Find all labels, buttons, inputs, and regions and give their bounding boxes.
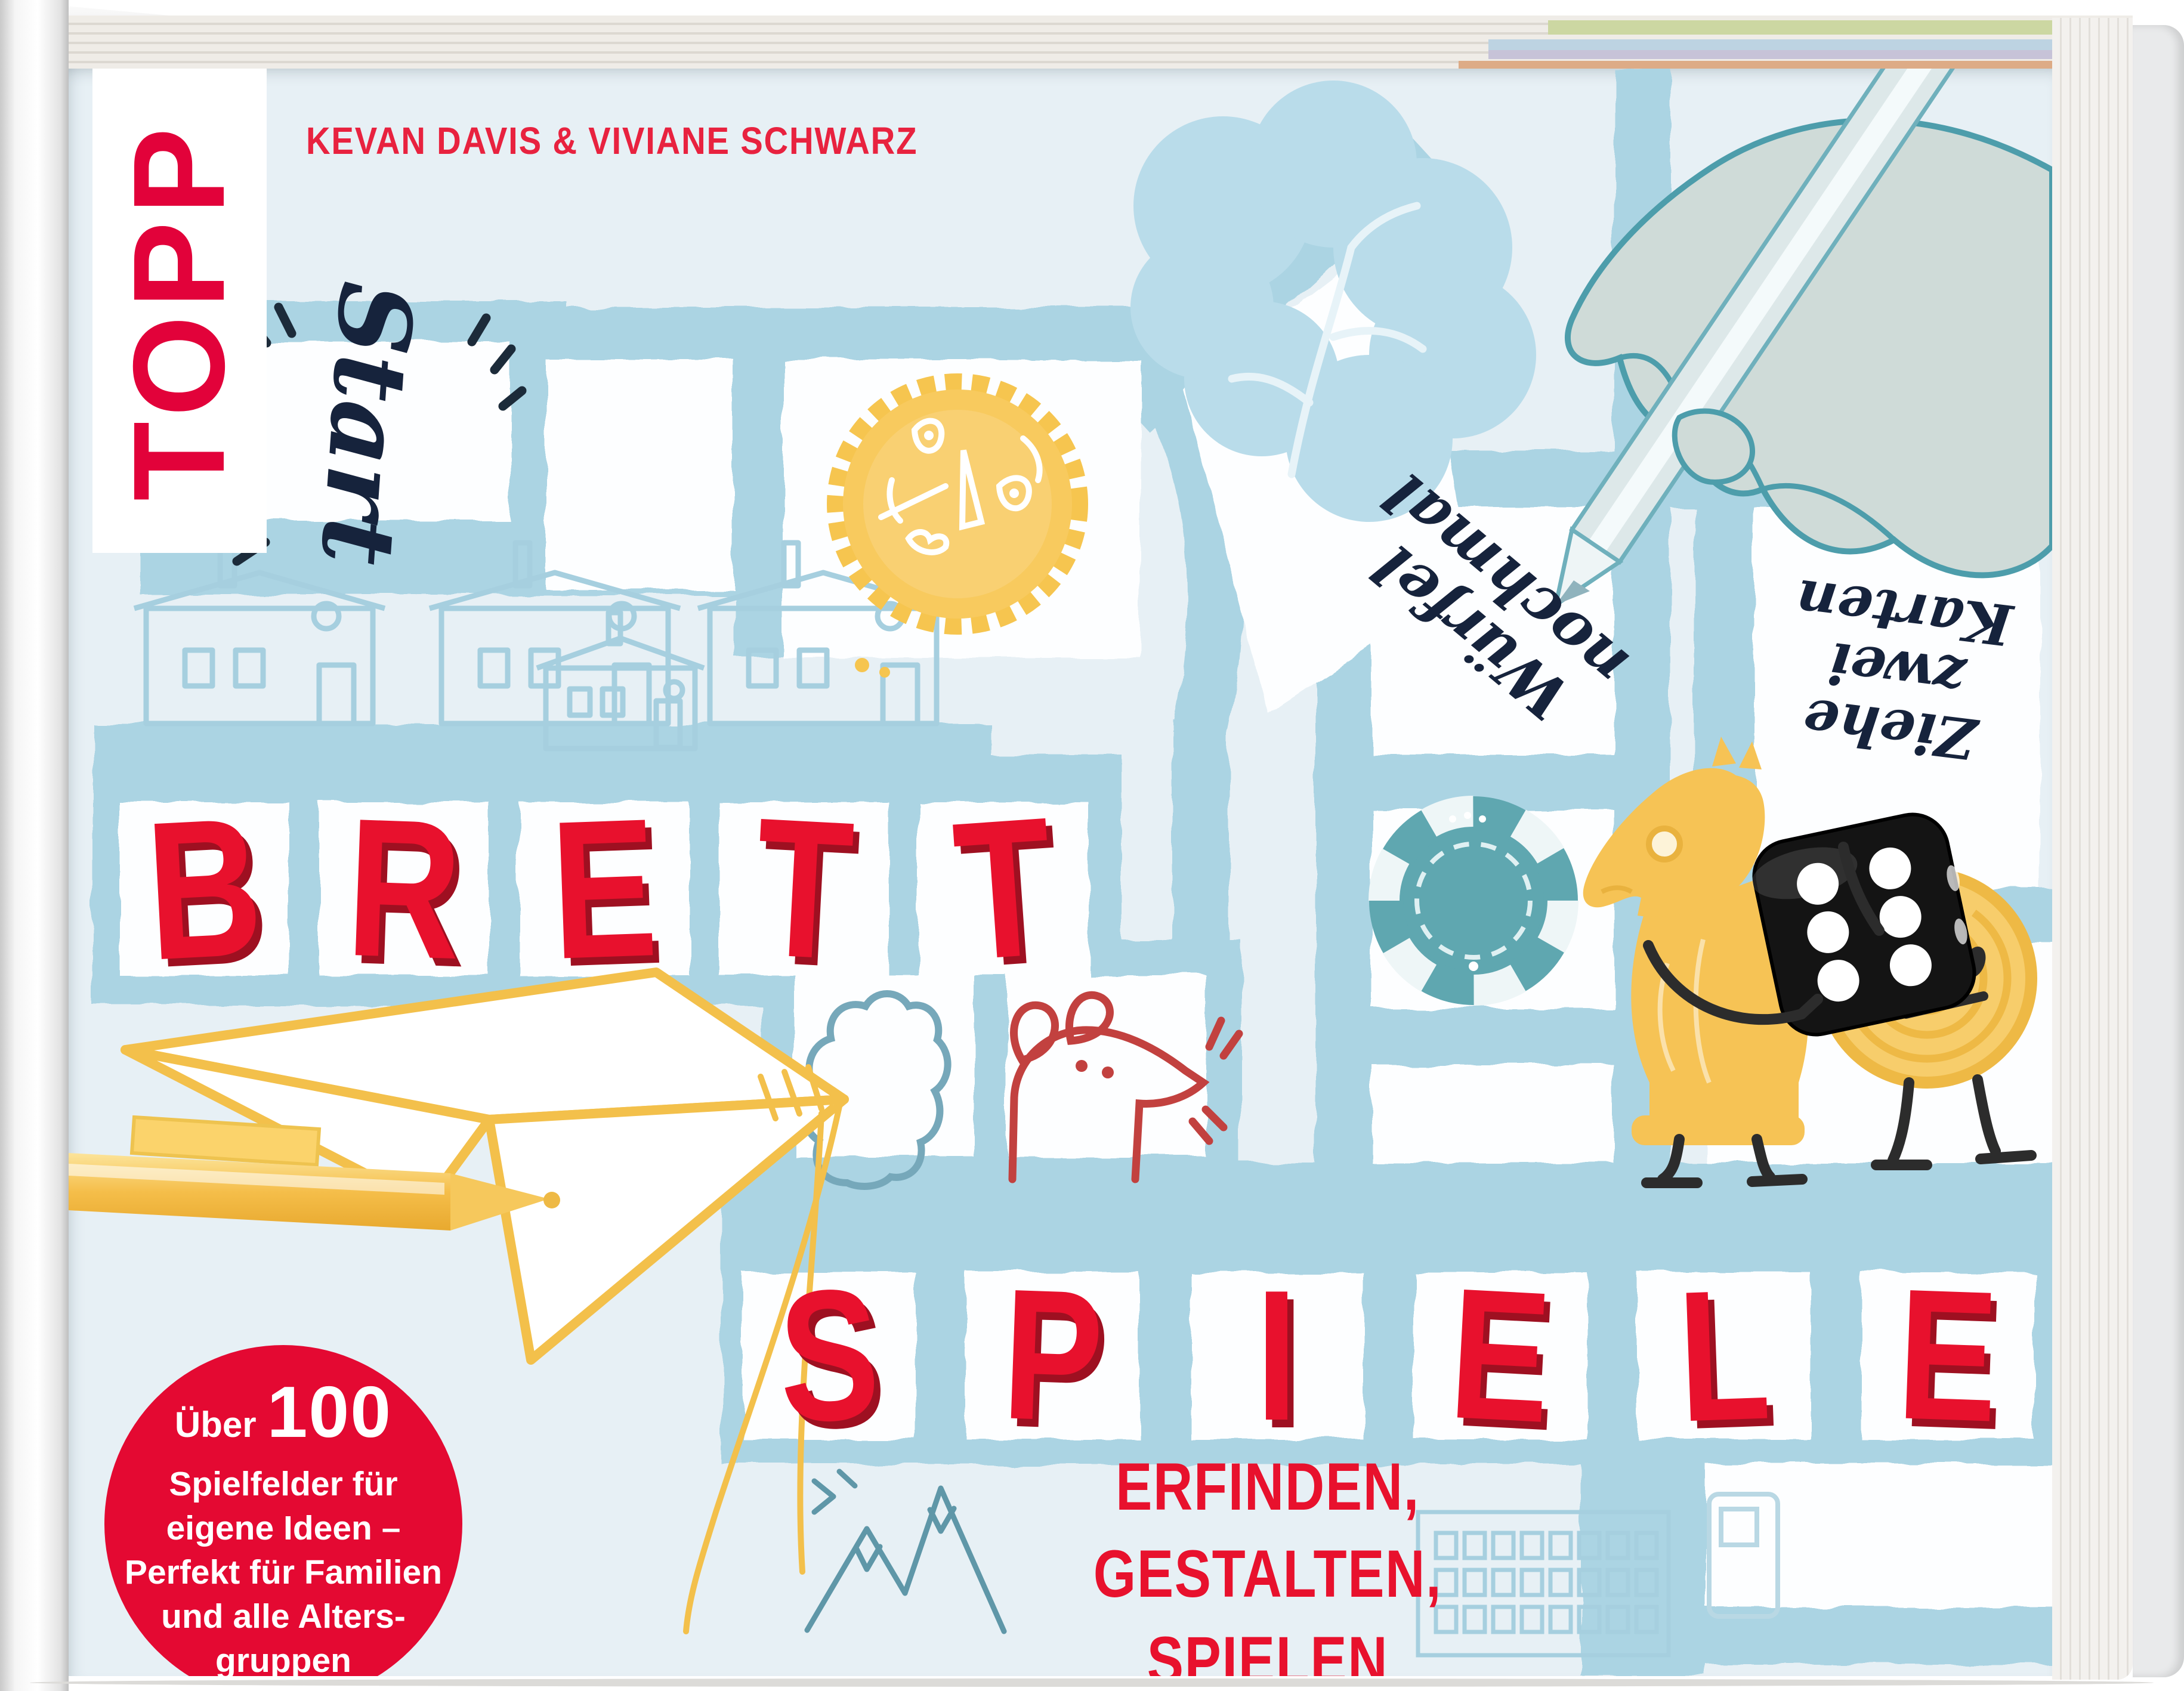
title-letter: B: [132, 799, 277, 979]
top-page-edges: [69, 16, 2133, 69]
badge-line5: und alle Alters-: [161, 1594, 406, 1639]
title-letter: P: [981, 1270, 1125, 1442]
start-label: Start: [302, 301, 431, 546]
topp-logo-text: TOPP: [105, 120, 254, 501]
back-cover-edge: [2133, 25, 2184, 1677]
badge-line4: Perfekt für Familien: [125, 1550, 442, 1594]
page-strip-lavender: [1488, 50, 2133, 59]
title-letter: E: [1427, 1269, 1574, 1443]
badge-word-ueber: Über: [175, 1402, 257, 1448]
badge-line1: Über 100: [175, 1365, 392, 1460]
subtitle-line1: ERFINDEN,: [1072, 1443, 1463, 1531]
badge-line6: gruppen: [215, 1639, 351, 1676]
badge-line3: eigene Ideen –: [166, 1506, 401, 1550]
page-strip-green: [1548, 20, 2133, 35]
title-letter: E: [1876, 1270, 2020, 1442]
gripping-finger: [1675, 411, 1752, 482]
book-spine-edge: [0, 0, 69, 1691]
title-letter: T: [930, 797, 1078, 979]
book-shadow: [30, 1678, 2154, 1687]
black-die-icon: [1744, 807, 1985, 1042]
right-page-edges: [2052, 18, 2133, 1680]
title-letter: E: [533, 800, 675, 978]
title-letter: L: [1652, 1270, 1796, 1442]
front-cover: TOPP KEVAN DAVIS & VIVIANE SCHWARZ Start…: [69, 69, 2052, 1676]
badge-line2: Spielfelder für: [169, 1462, 397, 1506]
book-cover-photo: { "cover": { "publisher_logo": "TOPP", "…: [0, 0, 2184, 1691]
field-label-ziehe: Ziehe zwei Karten: [1765, 567, 2029, 772]
title-letter: S: [757, 1270, 901, 1442]
subtitle-line2: GESTALTEN,: [1072, 1531, 1463, 1618]
title-letter: I: [1207, 1272, 1346, 1439]
title-letter: R: [333, 800, 475, 978]
author-line: KEVAN DAVIS & VIVIANE SCHWARZ: [306, 119, 918, 163]
poker-chip-icon: [1369, 796, 1578, 1005]
page-strip-blue: [1488, 39, 2133, 50]
subtitle-line3: SPIELEN: [1072, 1617, 1463, 1676]
subtitle: ERFINDEN, GESTALTEN, SPIELEN: [1072, 1443, 1463, 1676]
title-letter: T: [731, 799, 876, 979]
topp-logo-plate: TOPP: [92, 69, 267, 553]
mountains-sketch-icon: [807, 1471, 1004, 1631]
badge-word-100: 100: [267, 1365, 393, 1460]
